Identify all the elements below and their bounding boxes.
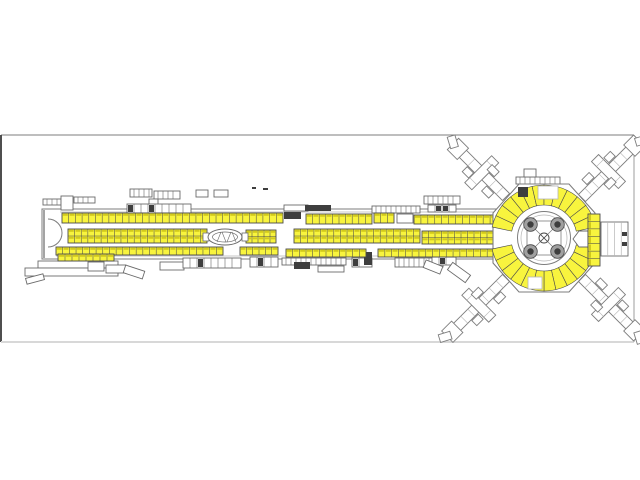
stand-row-stands-top-west [62, 213, 283, 223]
structure-box-11 [284, 205, 308, 211]
structure-comb-3 [130, 189, 152, 197]
structure-comb-0 [43, 199, 61, 205]
hub-core [518, 212, 571, 265]
drawing-canvas [0, 0, 640, 480]
stand-row-stands-bot-center2 [286, 249, 366, 257]
structure-box-23 [88, 262, 104, 271]
structure-comb-14 [372, 206, 420, 213]
structure-box-7 [196, 190, 208, 197]
structure-comb-29 [282, 258, 346, 265]
structure-box-8 [214, 190, 228, 197]
structure-comb-16 [424, 196, 460, 204]
structure-box-15 [397, 214, 413, 223]
structure-dark-10 [263, 188, 268, 190]
structure-cells-28 [250, 257, 278, 267]
stand-row-stands-top-mid [306, 214, 372, 224]
stand-row-stands-top-cluster [374, 213, 394, 223]
stand-row-stands-bot-east [378, 249, 494, 257]
structure-comb-18 [516, 177, 560, 184]
stand-row-stands-mid-west [68, 229, 207, 243]
structure-box-19 [524, 169, 536, 177]
structure-box-26 [160, 262, 184, 270]
stand-row-stands-bot-center1 [240, 247, 278, 255]
structure-cells-17 [428, 205, 456, 212]
stand-row-stands-mid-center2 [294, 229, 420, 243]
structure-cells-6 [127, 204, 191, 213]
stand-row-stands-mid-center1 [246, 230, 276, 243]
structure-dark-12 [284, 212, 301, 219]
stand-row-stands-lower-west [58, 254, 114, 261]
floorplan-svg [0, 0, 640, 480]
structure-dark-9 [252, 187, 256, 189]
stand-row-stands-top-east [414, 215, 497, 224]
structure-dark-13 [305, 205, 331, 211]
structure-box-24 [106, 265, 126, 273]
structure-dark-30 [294, 262, 310, 269]
structure-box-1 [61, 196, 73, 210]
structure-box-31 [318, 266, 344, 272]
structure-comb-4 [154, 191, 180, 199]
structure-comb-2 [74, 197, 95, 203]
structure-cells-27 [183, 258, 241, 268]
